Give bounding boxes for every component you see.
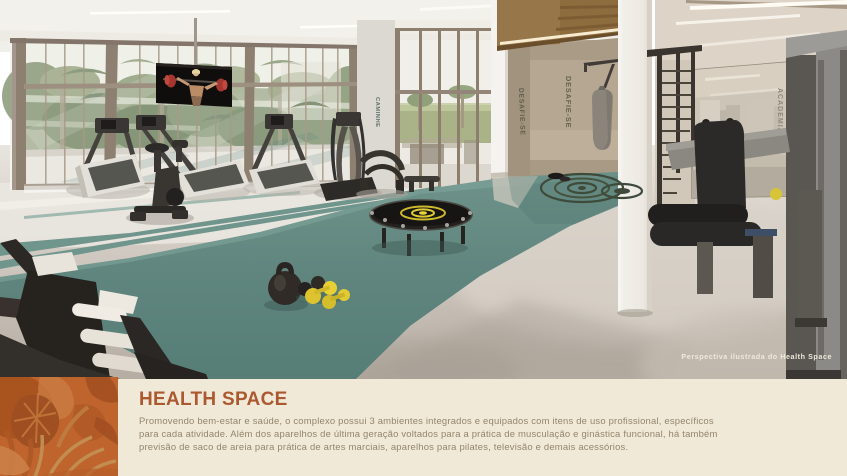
svg-text:DESAFIE-SE: DESAFIE-SE [564, 76, 573, 128]
svg-text:ACADEMIA: ACADEMIA [776, 88, 783, 134]
svg-text:CAMINHE: CAMINHE [374, 97, 380, 128]
svg-text:Perspectiva ilustrada do Healt: Perspectiva ilustrada do Health Space [681, 352, 832, 361]
